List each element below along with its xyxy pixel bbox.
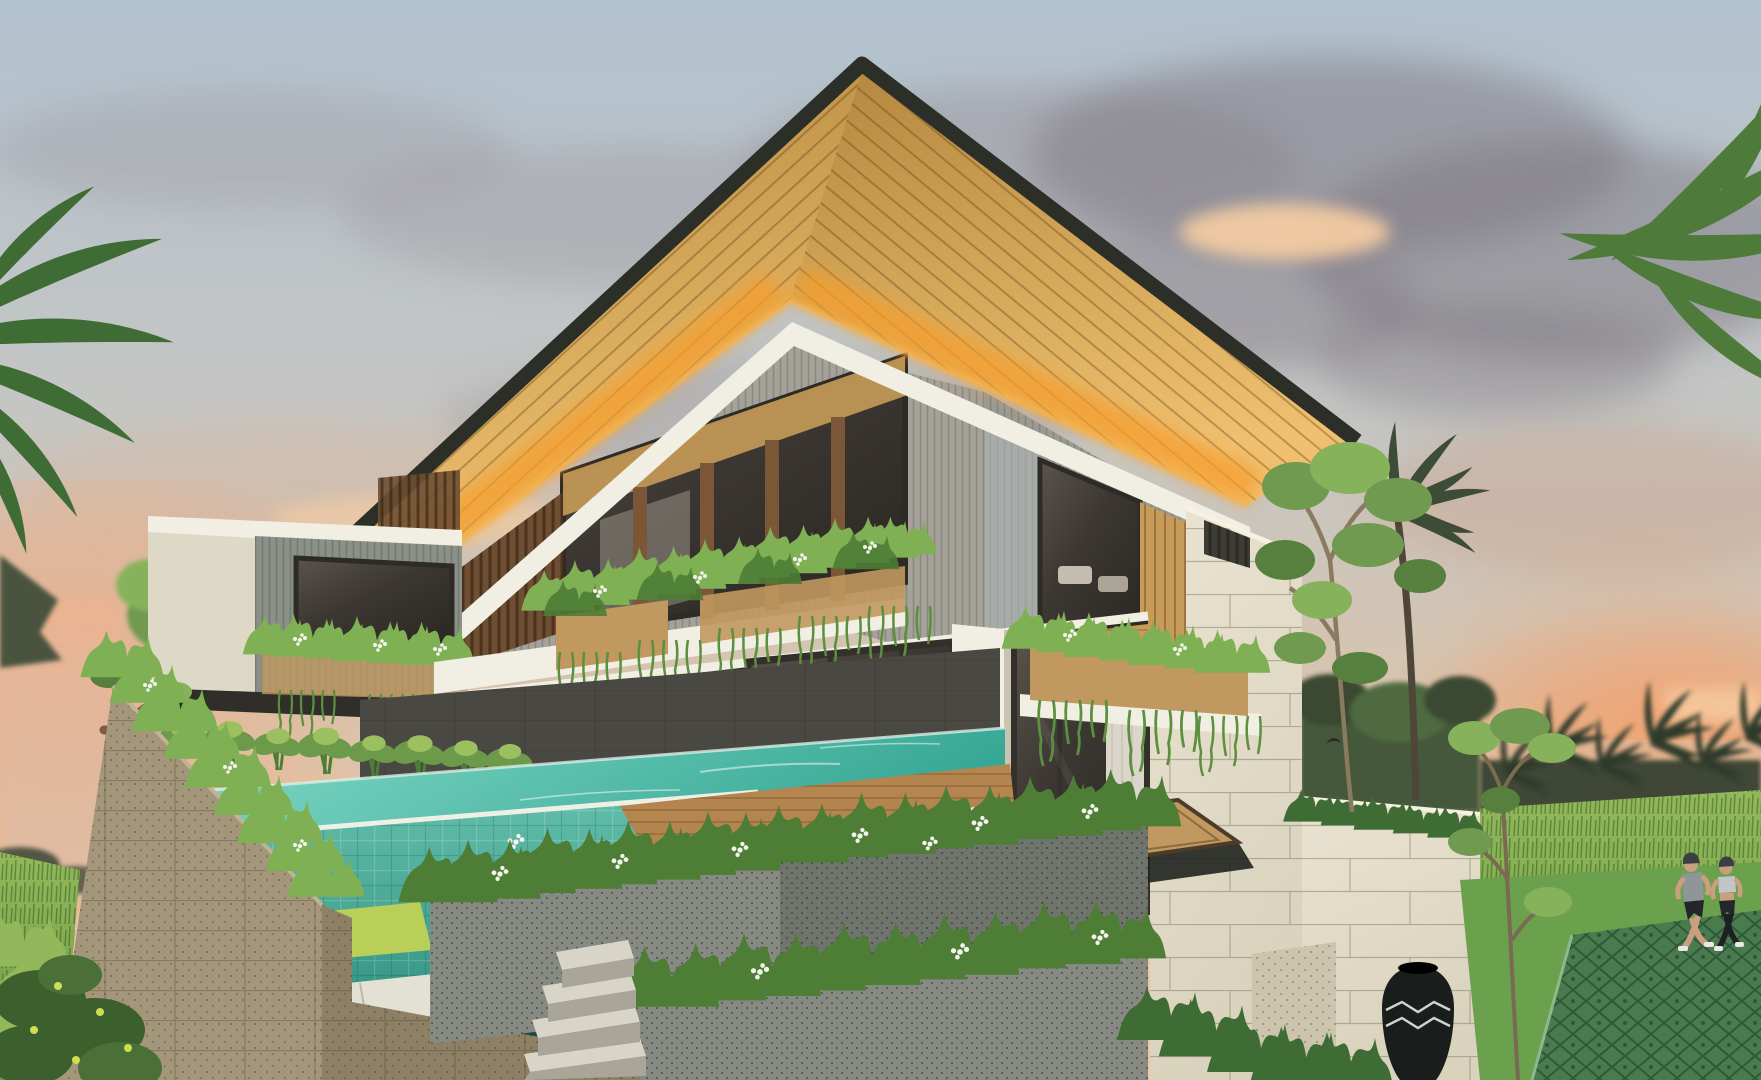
midriff	[1720, 893, 1734, 901]
carved-black-pot	[1382, 962, 1454, 1080]
shoe	[1678, 946, 1688, 951]
villa-exterior-render	[0, 0, 1761, 1080]
shoe	[1704, 942, 1714, 947]
tank-top	[1682, 872, 1704, 902]
shoe	[1714, 946, 1723, 951]
interior-pillow	[1058, 566, 1092, 584]
scene-canvas	[0, 0, 1761, 1080]
interior-pillow	[1098, 576, 1128, 592]
wing-side-panel	[148, 532, 255, 694]
sports-top	[1718, 876, 1736, 893]
pot-mouth	[1398, 962, 1438, 974]
shoe	[1735, 942, 1744, 947]
